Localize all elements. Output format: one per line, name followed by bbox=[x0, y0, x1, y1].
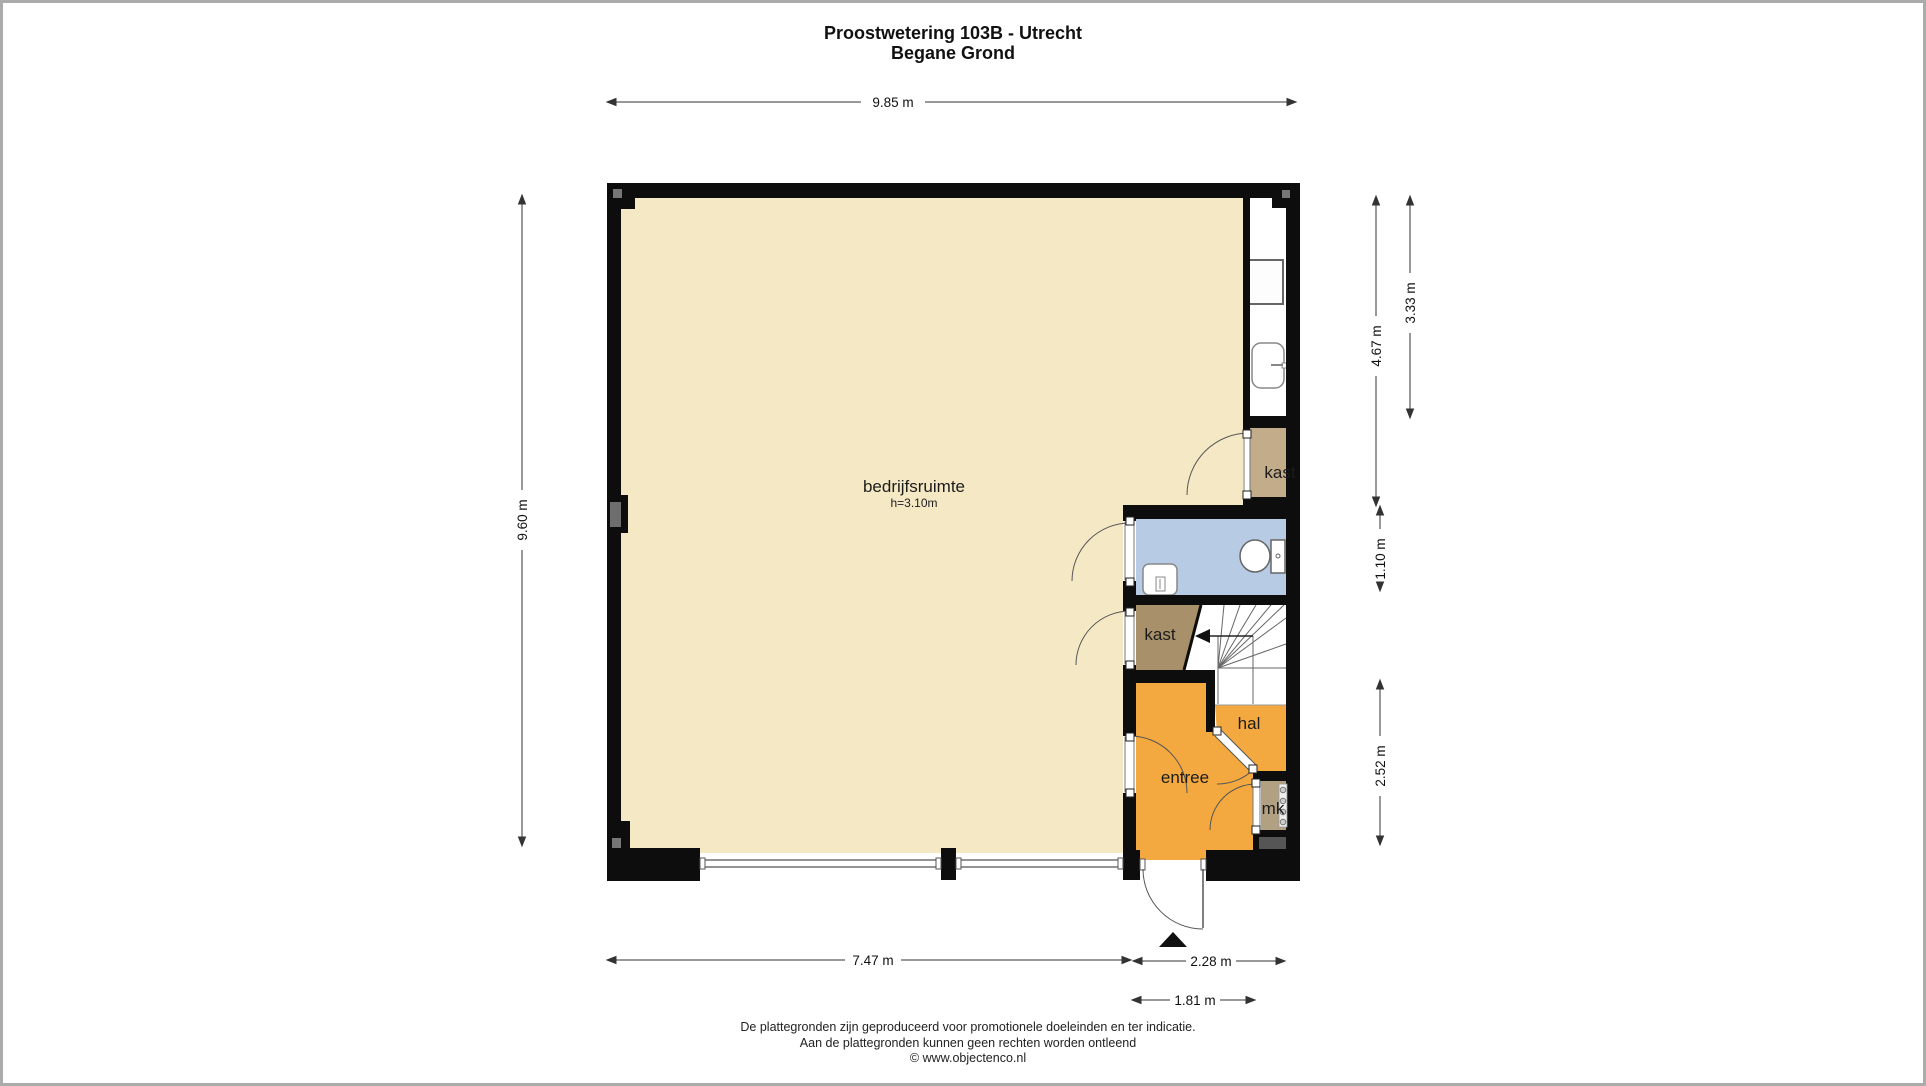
label-hal: hal bbox=[1238, 714, 1261, 733]
dim-bottom-right: 2.28 m bbox=[1133, 954, 1285, 969]
svg-text:1.81 m: 1.81 m bbox=[1174, 993, 1215, 1008]
floorplan-drawing: bedrijfsruimte h=3.10m kast kast hal ent… bbox=[3, 3, 1926, 1086]
disclaimer-footer: De plattegronden zijn geproduceerd voor … bbox=[3, 1020, 1926, 1067]
threshold-block bbox=[1259, 837, 1286, 849]
front-door bbox=[1140, 859, 1206, 929]
footer-line1: De plattegronden zijn geproduceerd voor … bbox=[3, 1020, 1926, 1036]
dim-right-lower: 2.52 m bbox=[1373, 680, 1388, 845]
svg-text:4.67 m: 4.67 m bbox=[1369, 325, 1384, 366]
pantry-counter bbox=[1249, 260, 1283, 304]
footer-line2: Aan de plattegronden kunnen geen rechten… bbox=[3, 1036, 1926, 1052]
room-fills bbox=[621, 198, 1288, 860]
label-bedrijfsruimte-height: h=3.10m bbox=[890, 496, 937, 510]
entrance-marker-triangle bbox=[1159, 932, 1187, 947]
toilet-fixture bbox=[1240, 540, 1285, 573]
svg-text:2.28 m: 2.28 m bbox=[1190, 954, 1231, 969]
label-bedrijfsruimte: bedrijfsruimte bbox=[863, 477, 965, 496]
label-entree: entree bbox=[1161, 768, 1209, 787]
label-kast-upper: kast bbox=[1264, 463, 1295, 482]
svg-text:7.47 m: 7.47 m bbox=[852, 953, 893, 968]
dim-left-height: 9.60 m bbox=[515, 195, 530, 846]
dim-right-outer: 3.33 m bbox=[1403, 196, 1418, 418]
svg-text:3.33 m: 3.33 m bbox=[1403, 282, 1418, 323]
dim-bottom-door: 1.81 m bbox=[1132, 993, 1255, 1008]
label-kast-lower: kast bbox=[1144, 625, 1175, 644]
label-mk: mk bbox=[1262, 799, 1285, 818]
svg-text:9.85 m: 9.85 m bbox=[872, 95, 913, 110]
toilet-handbasin bbox=[1143, 564, 1177, 595]
window-left bbox=[700, 853, 941, 881]
dim-right-toilet: 1.10 m bbox=[1373, 506, 1388, 591]
svg-text:1.10 m: 1.10 m bbox=[1373, 538, 1388, 579]
dim-top-width: 9.85 m bbox=[607, 95, 1296, 110]
floorplan-canvas: Proostwetering 103B - Utrecht Begane Gro… bbox=[0, 0, 1926, 1086]
dim-bottom-main: 7.47 m bbox=[607, 953, 1131, 968]
svg-text:2.52 m: 2.52 m bbox=[1373, 745, 1388, 786]
footer-copyright: © www.objectenco.nl bbox=[3, 1051, 1926, 1067]
window-right bbox=[956, 853, 1123, 881]
dim-right-inner: 4.67 m bbox=[1369, 196, 1384, 506]
svg-text:9.60 m: 9.60 m bbox=[515, 499, 530, 540]
